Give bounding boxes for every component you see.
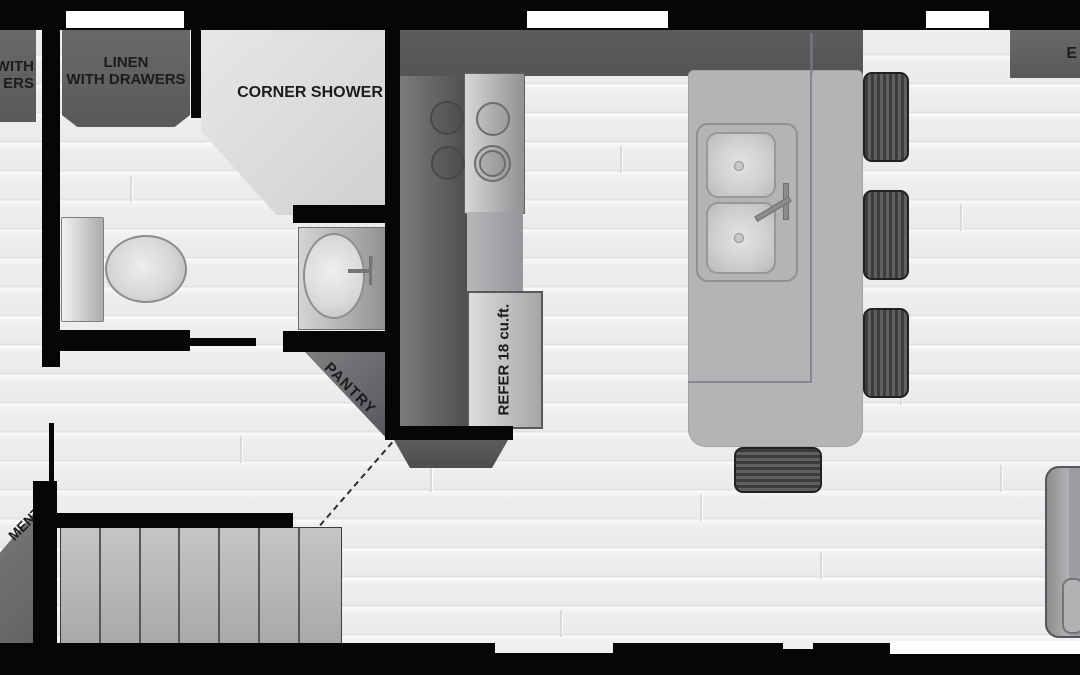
- bench-slat-line: [298, 528, 300, 646]
- floor-plank-joint: [560, 610, 562, 637]
- overhead-cabinet: E: [1010, 30, 1080, 78]
- pocket-door: [190, 338, 256, 346]
- sofa-cushion: [1062, 578, 1080, 634]
- wardrobe-label-line2: ERS: [0, 75, 34, 92]
- burner-icon: [431, 146, 465, 180]
- island-counter-line: [810, 33, 813, 76]
- door-opening: [783, 643, 813, 649]
- floor-plank-joint: [960, 204, 962, 231]
- floor-plank-joint: [820, 552, 822, 579]
- floor-plank-joint: [130, 175, 132, 202]
- bathroom-left-wall: [42, 28, 60, 367]
- burner-icon: [430, 101, 464, 135]
- sink-drain-icon: [734, 233, 744, 243]
- linen-label-line1: LINEN: [62, 54, 190, 71]
- bar-stool: [863, 190, 909, 280]
- refrigerator-label: REFER 18 cu.ft.: [495, 293, 512, 427]
- wardrobe-label-line1: WITH: [0, 58, 34, 75]
- vanity-sink: [303, 233, 365, 319]
- island-counter-line: [810, 70, 812, 382]
- floor-plank-joint: [430, 465, 432, 492]
- floor-plank-joint: [240, 436, 242, 463]
- bench-slat-line: [218, 528, 220, 646]
- bench-steps: [60, 527, 342, 647]
- bar-stool: [863, 308, 909, 398]
- kitchen-partition-wall: [385, 28, 400, 440]
- floor-plan: WITH ERS LINEN WITH DRAWERS CORNER SHOWE…: [0, 0, 1080, 675]
- window: [890, 641, 1080, 654]
- refrigerator: REFER 18 cu.ft.: [467, 291, 543, 429]
- corner-shower-label: CORNER SHOWER: [225, 84, 395, 102]
- toilet-tank: [61, 217, 104, 322]
- island-counter-line: [688, 381, 812, 383]
- toilet-bowl: [105, 235, 187, 303]
- bar-stool: [863, 72, 909, 162]
- bathroom-bottom-wall: [58, 330, 190, 351]
- kitchen-counter-section: [467, 212, 523, 293]
- window: [66, 11, 184, 28]
- window: [527, 11, 668, 28]
- vanity-side-arc: [372, 234, 386, 316]
- linen-cabinet: LINEN WITH DRAWERS: [62, 28, 190, 127]
- bench-slat-line: [258, 528, 260, 646]
- bench-back-wall: [55, 513, 293, 528]
- half-wall: [49, 423, 54, 483]
- bench-slat-line: [139, 528, 141, 646]
- counter-end-cabinet: [394, 440, 508, 468]
- floor-plank-joint: [620, 146, 622, 173]
- cooktop: [464, 73, 525, 214]
- pantry-top-wall: [283, 331, 387, 352]
- floor-plank-joint: [1000, 465, 1002, 492]
- bar-stool: [734, 447, 822, 493]
- burner-inner-ring-icon: [479, 150, 506, 177]
- linen-label-line2: WITH DRAWERS: [62, 71, 190, 88]
- burner-icon: [476, 102, 510, 136]
- bench-slat-line: [99, 528, 101, 646]
- entry-door-opening: [495, 643, 613, 653]
- wardrobe-cabinet: WITH ERS: [0, 30, 36, 122]
- bench-slat-line: [178, 528, 180, 646]
- entertainment-wall: [33, 481, 57, 645]
- kitchen-bottom-wall: [387, 426, 513, 440]
- window: [926, 11, 989, 28]
- shower-bottom-wall: [293, 205, 385, 223]
- linen-shower-wall: [191, 28, 201, 118]
- floor-plank-joint: [700, 494, 702, 521]
- overhead-cabinet-label: E: [1066, 45, 1077, 63]
- sink-drain-icon: [734, 161, 744, 171]
